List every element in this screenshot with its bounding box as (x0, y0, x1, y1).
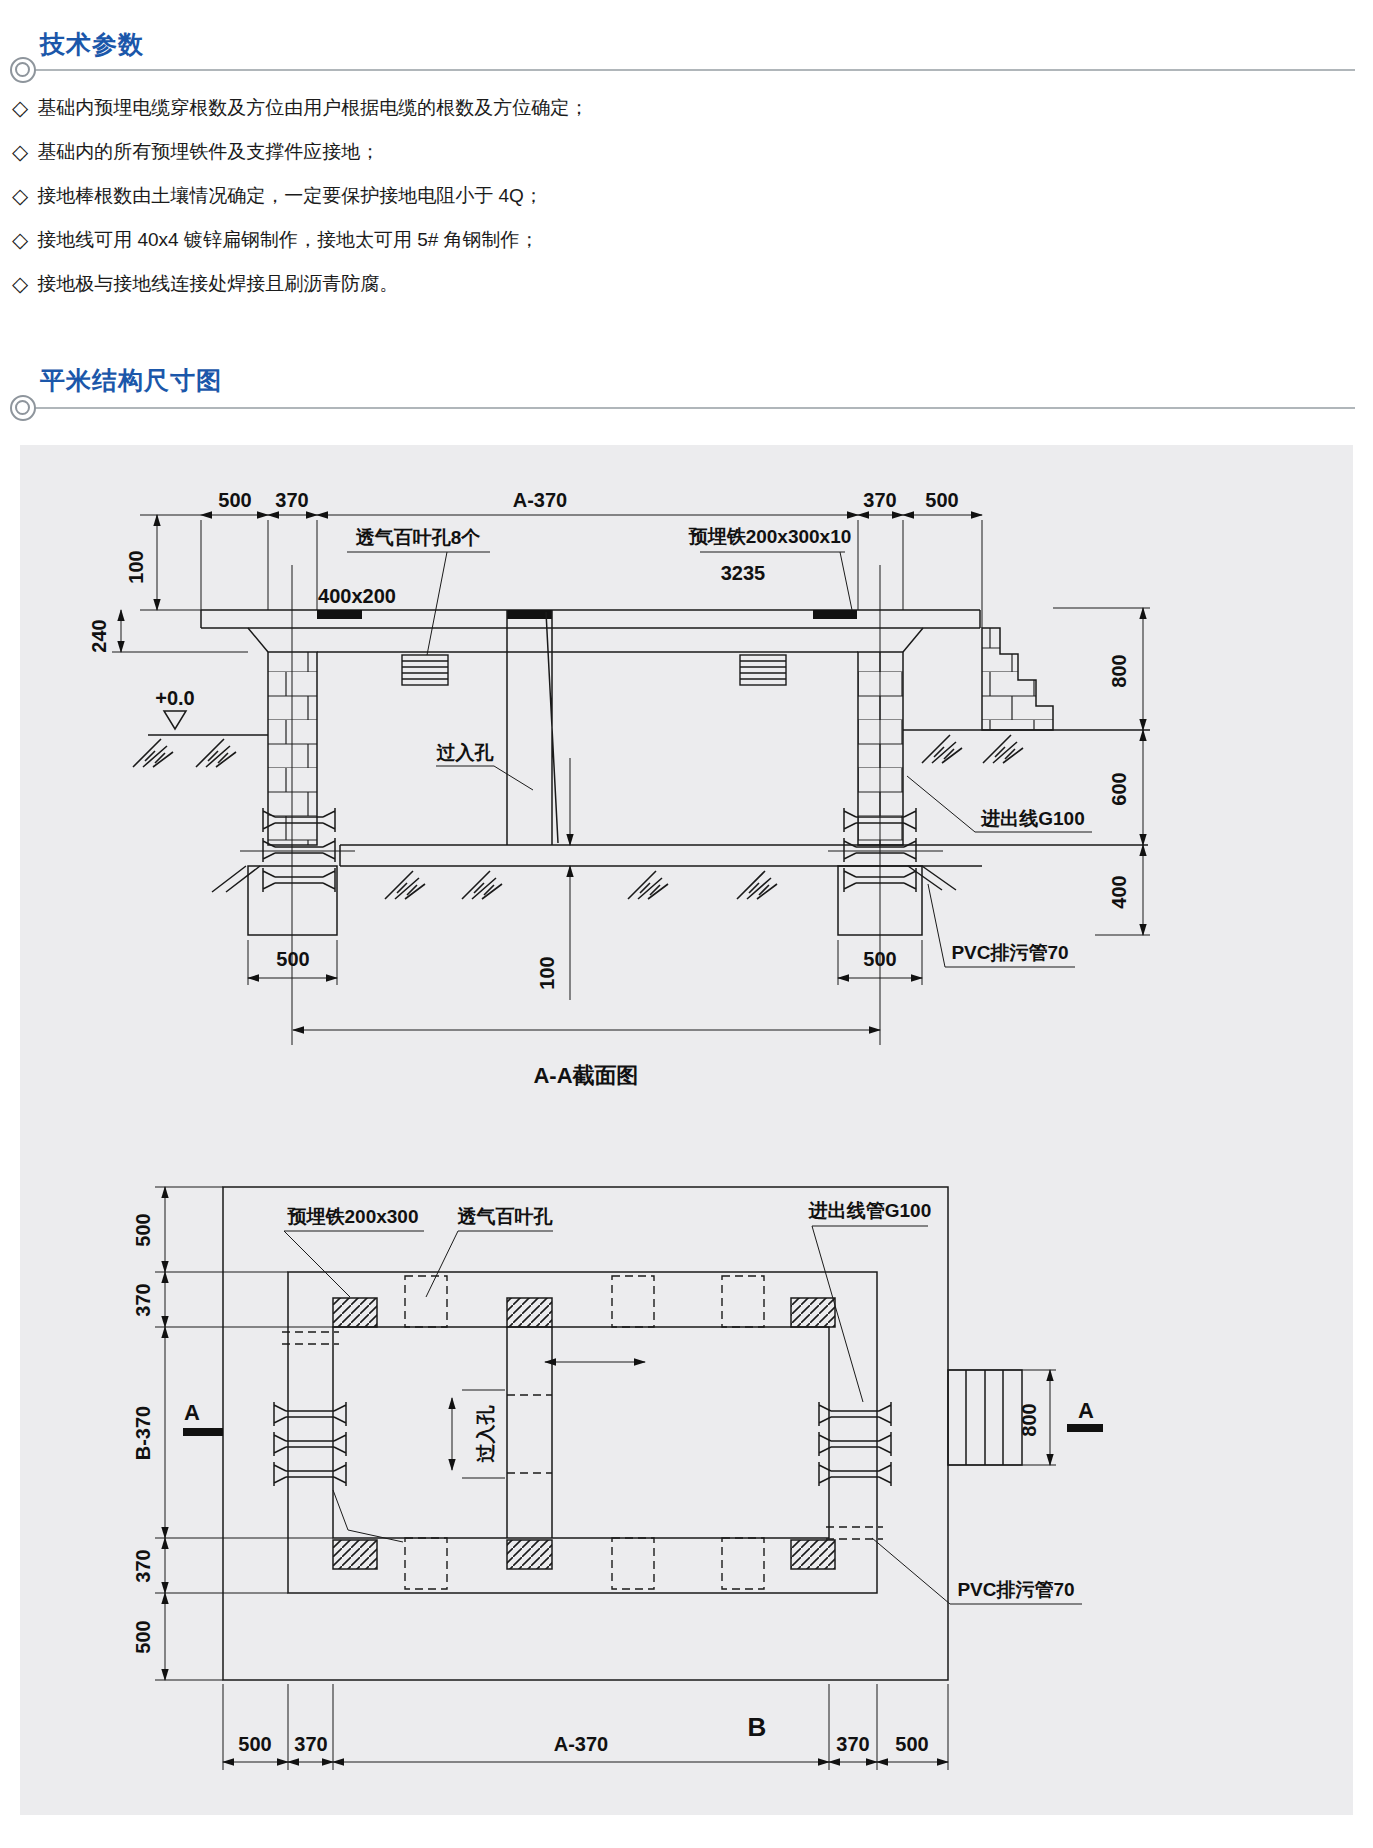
diamond-bullet-icon: ◇ (12, 184, 28, 207)
dim-label: 600 (1108, 772, 1130, 805)
section-structure (112, 565, 1150, 1045)
section-bottom-dims: 500 500 100 (248, 758, 922, 1030)
dim-label: 500 (863, 948, 896, 970)
cable-duct (274, 1432, 346, 1456)
vent-label: 透气百叶孔 (457, 1206, 554, 1227)
page-title-tech-params: 技术参数 (40, 28, 144, 61)
manhole-label: 过入孔 (475, 1405, 496, 1463)
plan-shaft (507, 1327, 552, 1538)
section-marker-a: A (184, 1400, 200, 1425)
embedded-plate (507, 610, 552, 619)
dim-label: 100 (536, 956, 558, 989)
plan-bottom-dims: 500 370 A-370 370 500 B (223, 1684, 948, 1770)
dim-label: 500 (925, 489, 958, 511)
section-marker-a: A (1078, 1398, 1094, 1423)
cable-duct (274, 1462, 346, 1486)
dim-label: 3235 (721, 562, 766, 584)
dim-label: 800 (1108, 654, 1130, 687)
dim-label: 400 (1108, 875, 1130, 908)
plan-caption-b: B (748, 1712, 767, 1742)
list-item-text: 接地极与接地线连接处焊接且刷沥青防腐。 (37, 272, 398, 295)
dim-label: 500 (218, 489, 251, 511)
pvc-label: PVC排污管70 (951, 942, 1068, 963)
iron-plate (333, 1540, 377, 1569)
list-item: ◇接地线可用 40x4 镀锌扁钢制作，接地太可用 5# 角钢制作； (12, 228, 1212, 251)
diamond-bullet-icon: ◇ (12, 140, 28, 163)
list-item: ◇基础内预埋电缆穿根数及方位由用户根据电缆的根数及方位确定； (12, 96, 1212, 119)
list-item: ◇接地棒根数由土壤情况确定，一定要保护接地电阻小于 4Q； (12, 184, 1212, 207)
dim-label: B-370 (132, 1406, 154, 1460)
plan-structure: 800 A A (183, 1187, 1103, 1680)
dim-label: 500 (895, 1733, 928, 1755)
divider (34, 407, 1355, 409)
dim-label: A-370 (554, 1733, 608, 1755)
section-marker-bar (1067, 1424, 1103, 1432)
plan-outer (223, 1187, 948, 1680)
iron-label: 预埋铁200x300 (287, 1206, 419, 1227)
louver-opening (612, 1276, 654, 1327)
dim-label: 500 (276, 948, 309, 970)
structure-drawing: 500 370 A-370 370 500 (20, 445, 1353, 1815)
dim-label: 100 (125, 550, 147, 583)
iron-label: 预埋铁200x300x10 (688, 526, 852, 547)
cable-duct (263, 868, 335, 892)
vent-label: 透气百叶孔8个 (355, 527, 482, 548)
tech-params-list: ◇基础内预埋电缆穿根数及方位由用户根据电缆的根数及方位确定； ◇基础内的所有预埋… (12, 96, 1212, 316)
diamond-bullet-icon: ◇ (12, 96, 28, 119)
section-top-dims: 500 370 A-370 370 500 (140, 489, 982, 628)
cable-duct (819, 1462, 891, 1486)
diamond-bullet-icon: ◇ (12, 228, 28, 251)
ground-hatch (133, 739, 173, 767)
section-caption: A-A截面图 (533, 1063, 638, 1088)
louver-opening (405, 1276, 447, 1327)
plan-view: 800 A A 500 370 B-370 370 500 (132, 1187, 1103, 1770)
ground-hatch (462, 871, 502, 899)
ground-hatch (922, 735, 962, 763)
iron-plate (507, 1298, 552, 1327)
dim-label: 370 (294, 1733, 327, 1755)
dim-label: 370 (275, 489, 308, 511)
section-marker-bar (183, 1428, 223, 1436)
drawing-panel: 500 370 A-370 370 500 (20, 445, 1353, 1815)
section-view: 500 370 A-370 370 500 (88, 489, 1150, 1088)
list-item: ◇接地极与接地线连接处焊接且刷沥青防腐。 (12, 272, 1212, 295)
entry-steps (982, 628, 1053, 730)
plate-label: 400x200 (318, 585, 396, 607)
iron-plate (333, 1298, 377, 1327)
dim-label: 240 (88, 619, 110, 652)
dim-label: A-370 (513, 489, 567, 511)
ground-hatch (196, 739, 236, 767)
embedded-plate (317, 610, 362, 619)
diamond-bullet-icon: ◇ (12, 272, 28, 295)
plan-wall-inner (333, 1327, 829, 1538)
dim-label: 800 (1018, 1403, 1040, 1436)
access-shaft (507, 610, 558, 845)
list-item-text: 基础内的所有预埋铁件及支撑件应接地； (37, 140, 379, 163)
section-right-dims: 800 600 400 (1053, 608, 1150, 935)
page-title-structure-drawing: 平米结构尺寸图 (40, 364, 222, 397)
dim-label: 370 (132, 1549, 154, 1582)
dim-label: 500 (132, 1620, 154, 1653)
louver-opening (722, 1276, 764, 1327)
inout-label: 进出线G100 (980, 808, 1084, 829)
ground-hatch (628, 871, 668, 899)
conduit-label: 进出线管G100 (808, 1200, 931, 1221)
ring-decoration-icon (15, 400, 30, 415)
list-item-text: 接地线可用 40x4 镀锌扁钢制作，接地太可用 5# 角钢制作； (37, 228, 538, 251)
manhole-label: 过入孔 (437, 742, 495, 763)
divider (34, 69, 1355, 71)
louver-opening (405, 1538, 447, 1589)
iron-plate (791, 1298, 835, 1327)
level-marker-icon (164, 711, 186, 729)
ring-decoration-icon (15, 62, 30, 77)
level-label: +0.0 (155, 687, 194, 709)
dim-label: 370 (863, 489, 896, 511)
pvc-label: PVC排污管70 (957, 1579, 1074, 1600)
section-left-dims: 100 240 (88, 515, 201, 653)
cable-duct (274, 1402, 346, 1426)
vent-grille (402, 655, 448, 685)
dim-label: 500 (238, 1733, 271, 1755)
plan-annotations: 预埋铁200x300 透气百叶孔 进出线管G100 PVC排污管70 过入孔 (284, 1200, 1082, 1604)
ground-hatch (737, 871, 777, 899)
vent-grille (740, 655, 786, 685)
dim-label: 370 (836, 1733, 869, 1755)
list-item-text: 基础内预埋电缆穿根数及方位由用户根据电缆的根数及方位确定； (37, 96, 588, 119)
cable-duct (819, 1432, 891, 1456)
louver-opening (612, 1538, 654, 1589)
list-item: ◇基础内的所有预埋铁件及支撑件应接地； (12, 140, 1212, 163)
cable-duct (819, 1402, 891, 1426)
iron-plate (507, 1540, 552, 1569)
list-item-text: 接地棒根数由土壤情况确定，一定要保护接地电阻小于 4Q； (37, 184, 543, 207)
dim-label: 370 (132, 1283, 154, 1316)
iron-plate (791, 1540, 835, 1569)
embedded-plate (813, 610, 857, 619)
louver-opening (722, 1538, 764, 1589)
plan-left-dims: 500 370 B-370 370 500 (132, 1187, 333, 1680)
ground-hatch (983, 735, 1023, 763)
ground-hatch (385, 871, 425, 899)
dim-label: 500 (132, 1213, 154, 1246)
